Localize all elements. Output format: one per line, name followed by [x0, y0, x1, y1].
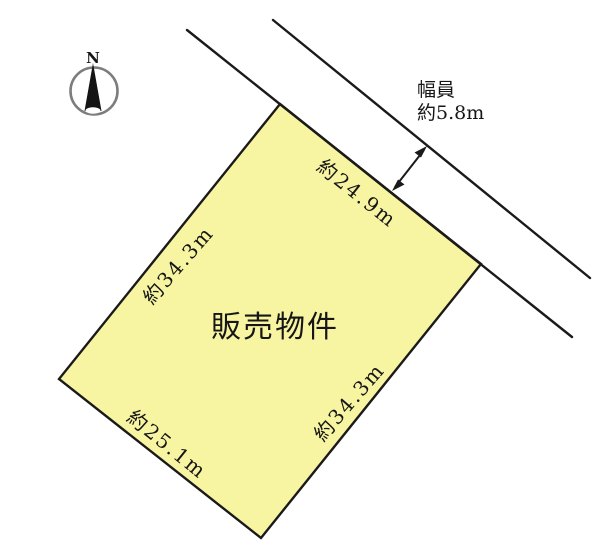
- north-compass: [71, 63, 118, 115]
- plot-title-label: 販売物件: [211, 302, 339, 346]
- road-width-arrow: [392, 146, 427, 191]
- compass-base-highlight: [86, 107, 101, 113]
- compass-needle-icon: [85, 63, 102, 111]
- road-width-label: 幅員 約5.8m: [417, 79, 484, 125]
- road-width-value: 約5.8m: [417, 102, 484, 125]
- compass-north-label: N: [86, 49, 100, 67]
- site-plan-canvas: [0, 0, 600, 551]
- site-plan: N 幅員 約5.8m 約24.9m 約34.3m 約34.3m 約25.1m 販…: [0, 0, 600, 551]
- road-width-title: 幅員: [417, 79, 484, 102]
